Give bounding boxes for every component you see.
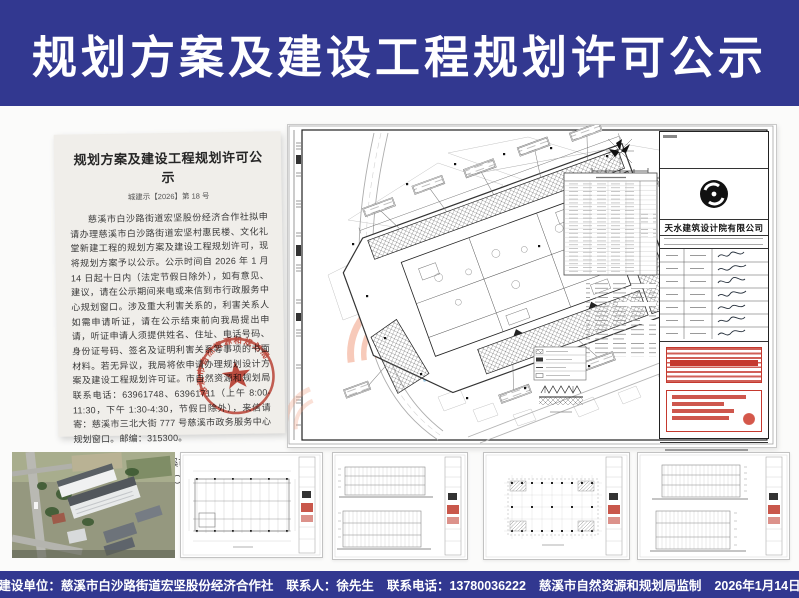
- section-detail: [539, 386, 583, 412]
- title-block: 天水建筑设计院有限公司: [659, 131, 769, 439]
- column-plan-thumbnail: [483, 452, 630, 560]
- aerial-photo: [12, 452, 175, 558]
- aerial-photo-thumbnail: [12, 452, 175, 558]
- elevation-drawing-2: [638, 453, 789, 559]
- floor-plan-thumbnail: [180, 452, 323, 558]
- architect-seal-icon: [743, 413, 755, 425]
- seal-star-icon: [220, 359, 252, 389]
- thumb-title-strip: [299, 457, 315, 553]
- column-plan-drawing: [484, 453, 629, 559]
- header-banner: 规划方案及建设工程规划许可公示: [0, 0, 799, 106]
- logo-icon: [698, 178, 730, 210]
- registered-architect-stamp: [666, 390, 762, 432]
- seal-rim-text: 慈溪市自然资源和规划局: [191, 331, 276, 398]
- review-stamp: [666, 347, 762, 383]
- notice-document: 规划方案及建设工程规划许可公示 城建示【2026】第 18 号 慈溪市白沙路街道…: [54, 131, 286, 437]
- footer-contact-phone: 联系电话：13780036222: [387, 575, 526, 594]
- title-block-top-box: [660, 132, 768, 169]
- official-red-seal: 慈溪市自然资源和规划局: [190, 329, 283, 422]
- indicator-table: [564, 173, 657, 275]
- notes-block: [586, 281, 656, 357]
- notice-title: 规划方案及建设工程规划许可公示: [69, 146, 268, 187]
- footer-supervisor: 慈溪市自然资源和规划局监制: [539, 575, 702, 594]
- design-company-name: 天水建筑设计院有限公司: [660, 220, 768, 236]
- elevation-thumbnail: [332, 452, 468, 560]
- watermark-arcs-partial: [288, 389, 320, 432]
- notice-doc-number: 城建示【2026】第 18 号: [70, 189, 268, 203]
- thumb-title-strip: [445, 457, 461, 555]
- floor-plan-drawing: [181, 453, 322, 557]
- design-institute-logo: [660, 169, 768, 220]
- svg-text:慈溪市自然资源和规划局: 慈溪市自然资源和规划局: [191, 331, 276, 398]
- thumb-title-strip: [766, 457, 782, 555]
- footer-banner: 建设单位：慈溪市白沙路街道宏坚股份经济合作社 联系人：徐先生 联系电话：1378…: [0, 571, 799, 598]
- site-plan-sheet: 天水建筑设计院有限公司: [287, 124, 777, 448]
- thumb-title-strip: [606, 457, 622, 555]
- elevation-thumbnail-2: [637, 452, 790, 560]
- legend-box: [534, 347, 586, 380]
- elevation-drawing: [333, 453, 467, 559]
- footer-construction-unit: 建设单位：慈溪市白沙路街道宏坚股份经济合作社: [0, 575, 273, 594]
- thumbnail-row: [0, 450, 799, 562]
- public-notice-board: 规划方案及建设工程规划许可公示 规划方案及建设工程规划许可公示 城建示【2026…: [0, 0, 799, 598]
- footer-date: 2026年1月14日: [714, 575, 799, 594]
- signature-table: [660, 249, 768, 342]
- certificate-lines: [660, 236, 768, 249]
- page-title: 规划方案及建设工程规划许可公示: [32, 21, 767, 86]
- footer-contact-person: 联系人：徐先生: [286, 575, 374, 594]
